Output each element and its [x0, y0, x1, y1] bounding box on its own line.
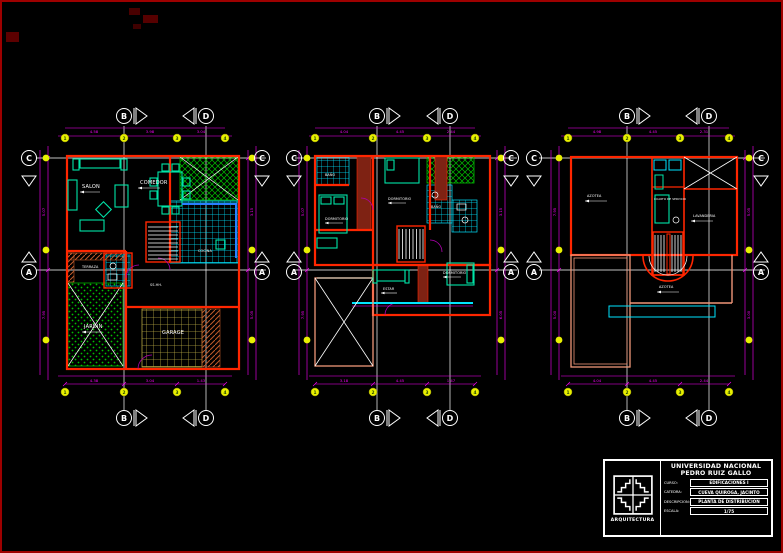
svg-text:A: A — [26, 268, 33, 277]
svg-text:3.00: 3.00 — [746, 310, 751, 319]
svg-text:4.04: 4.04 — [593, 378, 602, 383]
svg-text:1: 1 — [313, 136, 316, 142]
balcony-rails — [317, 278, 473, 306]
svg-text:A: A — [508, 268, 515, 277]
svg-text:C: C — [531, 154, 537, 163]
field-value-descripcion: PLANTA DE DISTRIBUCION — [690, 498, 768, 506]
svg-text:3: 3 — [425, 136, 428, 142]
room-label-bano-2: BAÑO — [431, 204, 441, 209]
svg-text:1.47: 1.47 — [447, 378, 456, 383]
plot-mark — [129, 8, 140, 15]
svg-text:2.31: 2.31 — [700, 129, 709, 134]
plot-mark — [6, 32, 19, 42]
svg-text:B: B — [624, 414, 630, 423]
room-label-salon: SALON — [82, 184, 100, 190]
svg-text:2.44: 2.44 — [447, 129, 456, 134]
cad-drawing-canvas: 4.58 3.98 3.04 4.38 3.04 1.43 5.07 7.95 … — [0, 0, 783, 553]
svg-text:2: 2 — [371, 390, 374, 396]
svg-text:4.45: 4.45 — [396, 129, 405, 134]
svg-text:A: A — [758, 268, 765, 277]
svg-text:4: 4 — [223, 390, 226, 396]
architecture-logo-icon — [612, 474, 654, 516]
svg-text:D: D — [203, 414, 210, 423]
svg-text:4: 4 — [223, 136, 226, 142]
room-label-estar: ESTAR — [383, 287, 395, 291]
plot-mark — [133, 24, 141, 29]
svg-text:3: 3 — [175, 390, 178, 396]
room-label-cuarto-servicio: CUARTO DE SERVICIO — [654, 197, 687, 201]
university-name-line1: UNIVERSIDAD NACIONAL — [664, 463, 768, 470]
svg-text:D: D — [447, 414, 454, 423]
svg-text:B: B — [121, 112, 127, 121]
field-label-catedra: CATEDRA: — [664, 490, 690, 494]
room-label-azotea-2: AZOTEA — [659, 285, 674, 289]
svg-text:3: 3 — [678, 390, 681, 396]
room-labels: AZOTEA CUARTO DE SERVICIO LAVANDERIA AZO… — [585, 194, 716, 293]
room-label-garage: GARAGE — [162, 330, 184, 336]
title-block-department: ARQUITECTURA — [611, 518, 655, 523]
title-block-fields: UNIVERSIDAD NACIONAL PEDRO RUIZ GALLO CU… — [661, 461, 771, 535]
svg-text:C: C — [291, 154, 297, 163]
svg-text:1: 1 — [566, 390, 569, 396]
field-value-escala: 1/75 — [690, 507, 768, 515]
svg-text:1: 1 — [63, 136, 66, 142]
svg-text:D: D — [203, 112, 210, 121]
svg-text:D: D — [706, 414, 713, 423]
svg-text:5.00: 5.00 — [552, 310, 557, 319]
field-value-curso: EDIFICACIONES I — [690, 479, 768, 487]
svg-text:3: 3 — [425, 390, 428, 396]
svg-text:A: A — [259, 268, 266, 277]
dim-text: 3.15 — [249, 207, 254, 216]
svg-text:C: C — [758, 154, 764, 163]
svg-text:4: 4 — [473, 136, 476, 142]
svg-text:2: 2 — [122, 136, 125, 142]
university-name-line2: PEDRO RUIZ GALLO — [664, 470, 768, 477]
void-terrace — [315, 278, 373, 366]
dim-text: 1.43 — [197, 378, 206, 383]
svg-text:4: 4 — [727, 390, 730, 396]
svg-text:2: 2 — [371, 136, 374, 142]
svg-text:7.95: 7.95 — [552, 207, 557, 216]
svg-text:5.05: 5.05 — [746, 207, 751, 216]
svg-text:7.95: 7.95 — [300, 310, 305, 319]
title-block-row-catedra: CATEDRA: CUEVA QUIROGA, JACINTO — [664, 488, 768, 496]
dim-text: 4.58 — [90, 129, 99, 134]
field-label-descripcion: DESCRIPCION: — [664, 500, 690, 504]
room-label-dormitorio-3: DORMITORIO — [443, 271, 467, 275]
svg-text:A: A — [291, 268, 298, 277]
dim-text: 3.04 — [146, 378, 155, 383]
svg-text:4.45: 4.45 — [649, 129, 658, 134]
svg-text:B: B — [624, 112, 630, 121]
entrance-arc — [643, 256, 693, 281]
field-value-catedra: CUEVA QUIROGA, JACINTO — [690, 488, 768, 496]
room-label-terraza: TERRAZA — [81, 265, 99, 269]
room-label-lavanderia: LAVANDERIA — [693, 214, 716, 218]
title-block-row-descripcion: DESCRIPCION: PLANTA DE DISTRIBUCION — [664, 498, 768, 506]
room-label-dormitorio-1: DORMITORIO — [325, 217, 349, 221]
svg-text:C: C — [259, 154, 265, 163]
svg-text:4.04: 4.04 — [340, 129, 349, 134]
svg-text:4: 4 — [473, 390, 476, 396]
dim-text: 4.38 — [90, 378, 99, 383]
svg-text:3: 3 — [175, 136, 178, 142]
svg-text:6.05: 6.05 — [498, 310, 503, 319]
dim-text: 5.07 — [41, 207, 46, 216]
svg-text:2: 2 — [625, 390, 628, 396]
room-label-jardin: JARDIN — [83, 324, 103, 330]
room-label-bano-1: BAÑO — [325, 172, 335, 177]
title-block-row-escala: ESCALA: 1/75 — [664, 507, 768, 515]
svg-text:1: 1 — [313, 390, 316, 396]
svg-text:1: 1 — [566, 136, 569, 142]
svg-text:C: C — [508, 154, 514, 163]
svg-text:B: B — [374, 414, 380, 423]
svg-text:B: B — [121, 414, 127, 423]
title-block: ARQUITECTURA UNIVERSIDAD NACIONAL PEDRO … — [603, 459, 773, 537]
room-label-cocina: COCINA — [198, 249, 212, 253]
dim-text: 5.05 — [249, 310, 254, 319]
svg-text:2.44: 2.44 — [700, 378, 709, 383]
room-label-comedor: COMEDOR — [140, 180, 168, 186]
room-label-ssh: SS.HH. — [150, 283, 162, 287]
svg-text:4: 4 — [727, 136, 730, 142]
svg-text:2: 2 — [625, 136, 628, 142]
service-fixtures — [654, 160, 681, 223]
title-block-row-curso: CURSO: EDIFICACIONES I — [664, 479, 768, 487]
svg-text:4.45: 4.45 — [396, 378, 405, 383]
room-label-azotea-1: AZOTEA — [587, 194, 602, 198]
svg-text:1: 1 — [63, 390, 66, 396]
room-label-dormitorio-2: DORMITORIO — [388, 197, 412, 201]
dim-text: 3.98 — [146, 129, 155, 134]
svg-text:4.45: 4.45 — [649, 378, 658, 383]
svg-text:3: 3 — [678, 136, 681, 142]
svg-text:4.98: 4.98 — [593, 129, 602, 134]
svg-text:B: B — [374, 112, 380, 121]
floor-plan-second-floor: 4.04 4.45 2.44 3.18 4.45 1.47 5.07 7.95 … — [285, 100, 520, 445]
floor-plan-roof: 4.98 4.45 2.31 4.04 4.45 2.44 7.95 5.00 … — [525, 100, 770, 445]
stairs — [399, 229, 423, 259]
svg-text:C: C — [26, 154, 32, 163]
svg-text:3.15: 3.15 — [498, 207, 503, 216]
svg-text:5.07: 5.07 — [300, 207, 305, 216]
section-bubble-letters: BD BD CA CA — [531, 112, 765, 423]
dim-text: 7.95 — [41, 310, 46, 319]
svg-text:D: D — [447, 112, 454, 121]
plot-mark — [143, 15, 158, 23]
dim-text: 3.04 — [197, 129, 206, 134]
svg-text:A: A — [531, 268, 538, 277]
field-label-curso: CURSO: — [664, 481, 690, 485]
svg-text:3.18: 3.18 — [340, 378, 349, 383]
field-label-escala: ESCALA: — [664, 509, 690, 513]
floor-plan-first-floor: 4.58 3.98 3.04 4.38 3.04 1.43 5.07 7.95 … — [20, 100, 270, 445]
svg-text:D: D — [706, 112, 713, 121]
void-x-area — [684, 157, 737, 189]
axis-bubbles-numbered: 1 2 3 4 1 2 3 4 — [556, 134, 753, 396]
title-block-logo-cell: ARQUITECTURA — [605, 461, 661, 535]
svg-text:2: 2 — [122, 390, 125, 396]
